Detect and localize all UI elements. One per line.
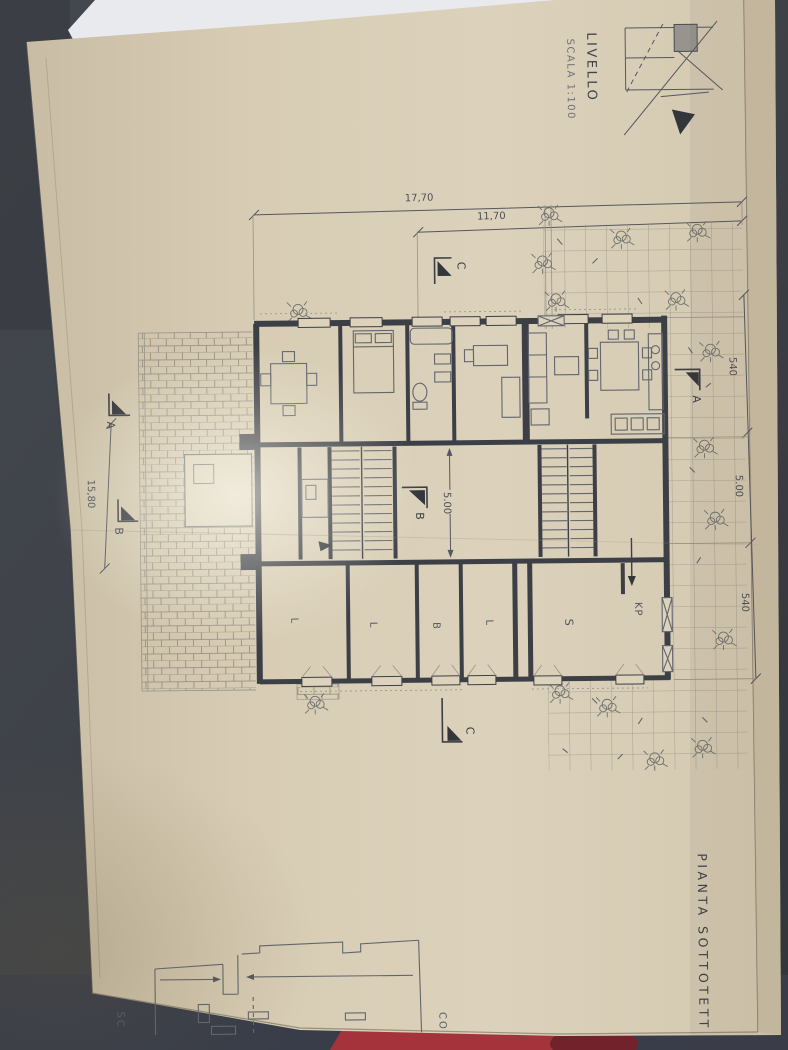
room-label-s: S (562, 619, 575, 627)
section-c-top-label: C (455, 262, 468, 270)
photo-of-floor-plan: LIVELLO SCALA 1:100 17,70 11,70 540 5.00… (0, 0, 788, 1050)
room-label-l3: L (483, 619, 494, 626)
shade-right-edge (690, 0, 788, 1050)
dim-top-outer: 17,70 (405, 193, 434, 205)
dim-stair-hall: 5.00 (441, 492, 452, 514)
section-c-bottom-label: C (463, 727, 476, 735)
title-level: LIVELLO (583, 32, 599, 102)
dim-top-inner: 11,70 (477, 211, 506, 223)
room-label-bath: B (430, 622, 441, 630)
title-scale: SCALA 1:100 (564, 39, 576, 120)
floor-plan-drawing: LIVELLO SCALA 1:100 17,70 11,70 540 5.00… (0, 0, 788, 1050)
light-reflection (53, 345, 423, 645)
room-label-l2: L (367, 622, 378, 629)
room-label-kp: KP (632, 602, 643, 617)
partial-text-bottom-center: CO (436, 1012, 447, 1031)
